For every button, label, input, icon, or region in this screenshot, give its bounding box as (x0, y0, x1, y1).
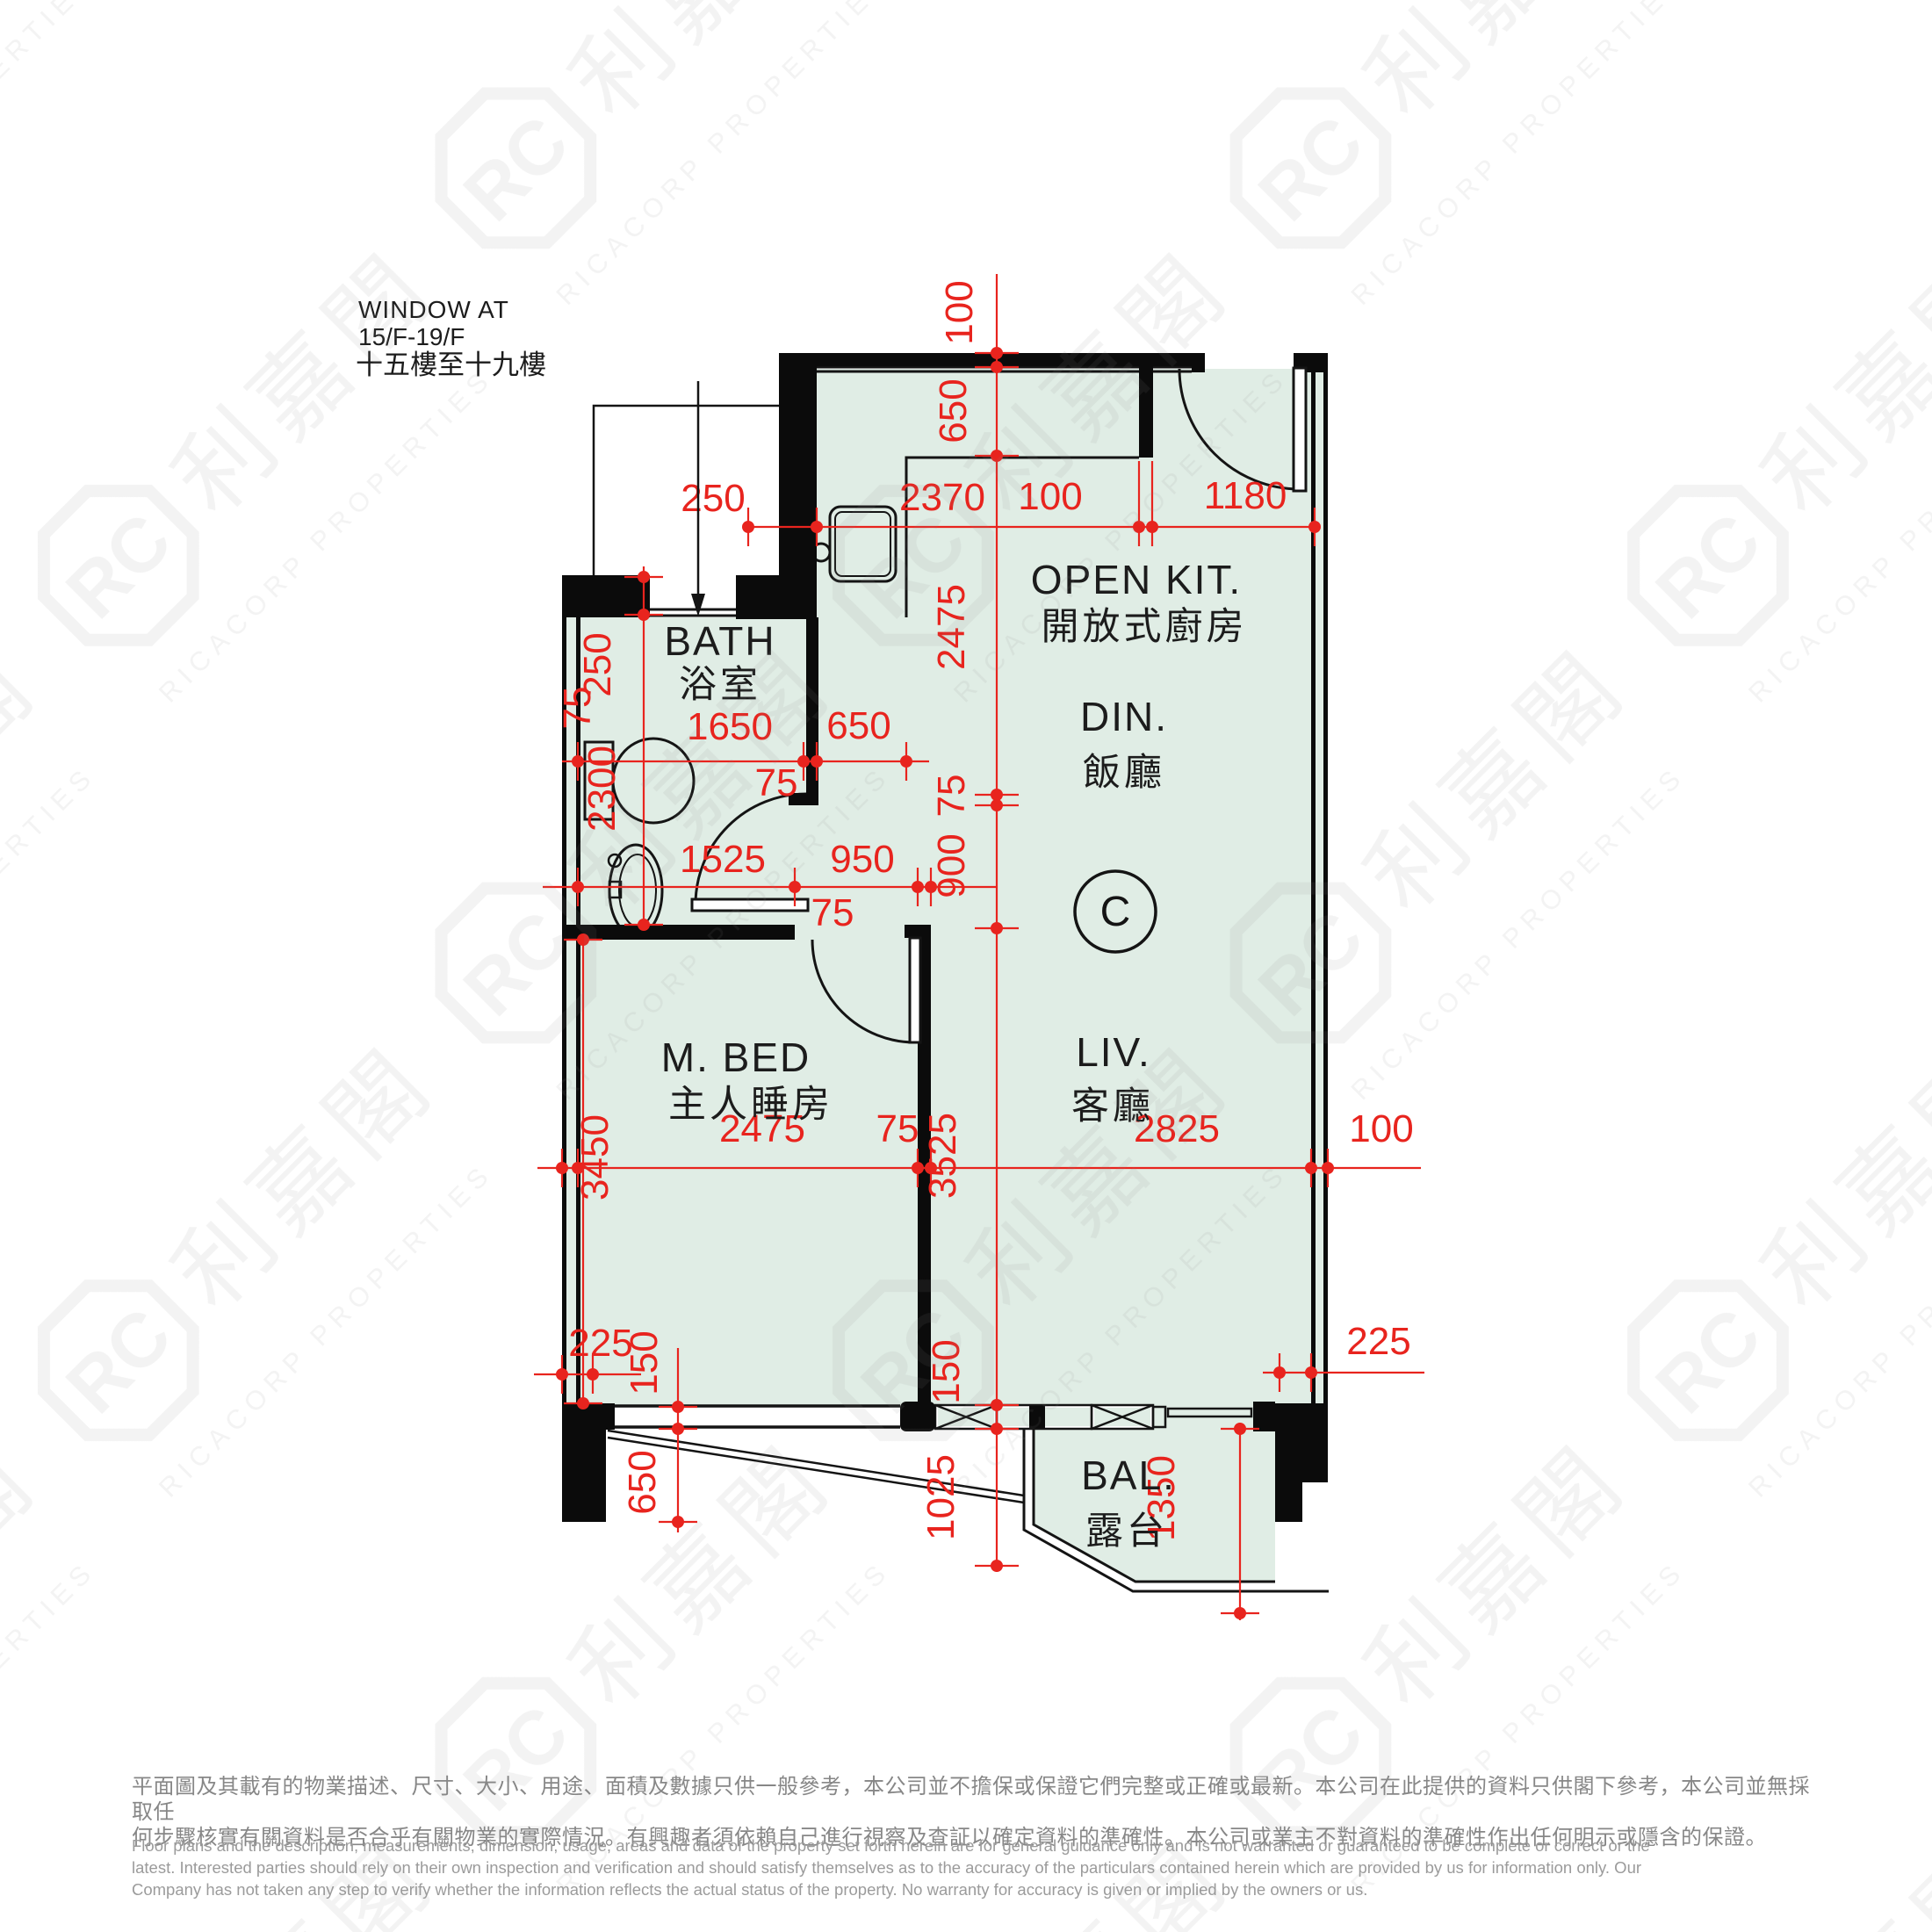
dim-2475-col: 2475 (930, 584, 973, 670)
label-living-en: LIV. (1076, 1029, 1151, 1075)
dim-100-top-row: 100 (1018, 475, 1082, 518)
label-open-kitchen-zh: 開放式廚房 (1042, 606, 1248, 648)
wall-bottom-left-block (562, 1403, 615, 1522)
dim-250-top: 250 (681, 477, 745, 520)
disclaimer-en-line1: Floor plans and the description, measure… (132, 1835, 1818, 1856)
disclaimer-en-line3: Company has not taken any step to verify… (132, 1878, 1818, 1900)
label-mbed-zh: 主人睡房 (668, 1084, 833, 1126)
dim-1025-col: 1025 (919, 1454, 962, 1540)
dim-900-col: 900 (930, 833, 973, 898)
dim-950: 950 (830, 838, 894, 881)
wall-balcony-right (1275, 1403, 1328, 1522)
window-note-line3: 十五樓至十九樓 (356, 350, 546, 380)
wall-band-jamb (1029, 1406, 1045, 1428)
window-note-line2: 15/F-19/F (358, 323, 465, 350)
dim-1525: 1525 (680, 838, 766, 881)
window-leader-arrow (691, 594, 705, 616)
dim-650-bathrow: 650 (826, 704, 890, 747)
floor-plan-drawing: 250 2370 100 1180 100 650 2475 75 900 35… (0, 0, 1932, 1932)
label-dining-en: DIN. (1080, 694, 1168, 739)
dim-1650: 1650 (687, 705, 773, 748)
dim-1180: 1180 (1204, 474, 1287, 517)
label-dining-zh: 飯廳 (1083, 752, 1165, 794)
unit-marker-letter: C (1100, 889, 1131, 935)
dim-150-col: 150 (925, 1339, 968, 1403)
wall-bath-top-right (736, 575, 817, 619)
disclaimer-zh-line1: 平面圖及其載有的物業描述、尺寸、大小、用途、面積及數據只供一般參考，本公司並不擔… (132, 1774, 1818, 1825)
bath-door-leaf (692, 899, 808, 911)
dim-75-divider: 75 (876, 1107, 919, 1150)
wall-divider-foot (900, 1402, 935, 1431)
wall-top-door-jamb (1192, 353, 1205, 372)
dim-100-col: 100 (938, 280, 981, 344)
wall-balcony-door-jamb (1253, 1402, 1275, 1431)
window-annotation: WINDOW AT 15/F-19/F 十五樓至十九樓 (356, 296, 705, 616)
wall-kitchen-stub (1139, 366, 1153, 458)
dim-100-rightwall: 100 (1349, 1107, 1413, 1150)
disclaimer-english: Floor plans and the description, measure… (132, 1835, 1818, 1900)
dim-2370: 2370 (899, 476, 985, 519)
dim-3525-col: 3525 (921, 1113, 964, 1199)
label-living-zh: 客廳 (1071, 1085, 1154, 1128)
label-mbed-en: M. BED (661, 1034, 811, 1080)
mbed-window (615, 1406, 900, 1427)
wall-right-inner (1323, 372, 1328, 1405)
label-open-kitchen-en: OPEN KIT. (1031, 557, 1242, 602)
label-balcony-zh: 露台 (1085, 1510, 1168, 1553)
wall-mbed-top (562, 925, 795, 940)
dim-75-corridor: 75 (811, 891, 854, 934)
mbed-door-leaf (910, 938, 920, 1042)
dim-150-left: 150 (623, 1330, 666, 1395)
dim-75-col: 75 (930, 775, 973, 818)
dim-650-bottomleft: 650 (621, 1450, 664, 1514)
dim-650-col: 650 (932, 378, 975, 443)
label-bath-zh: 浴室 (679, 664, 761, 706)
wall-bath-top-left (562, 575, 650, 617)
dim-225-right: 225 (1346, 1320, 1410, 1363)
label-balcony-en: BAL. (1081, 1453, 1176, 1498)
wall-top (817, 353, 1192, 366)
dim-2300-bath: 2300 (580, 746, 624, 832)
dim-75-bathrow: 75 (755, 761, 798, 804)
floorplan-page: { "colors": { "floor": "#e0ede5", "wall"… (0, 0, 1932, 1932)
disclaimer-en-line2: latest. Interested parties should rely o… (132, 1856, 1818, 1878)
dim-75-leftwall: 75 (556, 687, 599, 730)
entrance-door-leaf (1294, 368, 1306, 491)
window-note-line1: WINDOW AT (358, 296, 509, 323)
label-bath-en: BATH (664, 618, 775, 664)
dim-3450: 3450 (573, 1114, 616, 1200)
